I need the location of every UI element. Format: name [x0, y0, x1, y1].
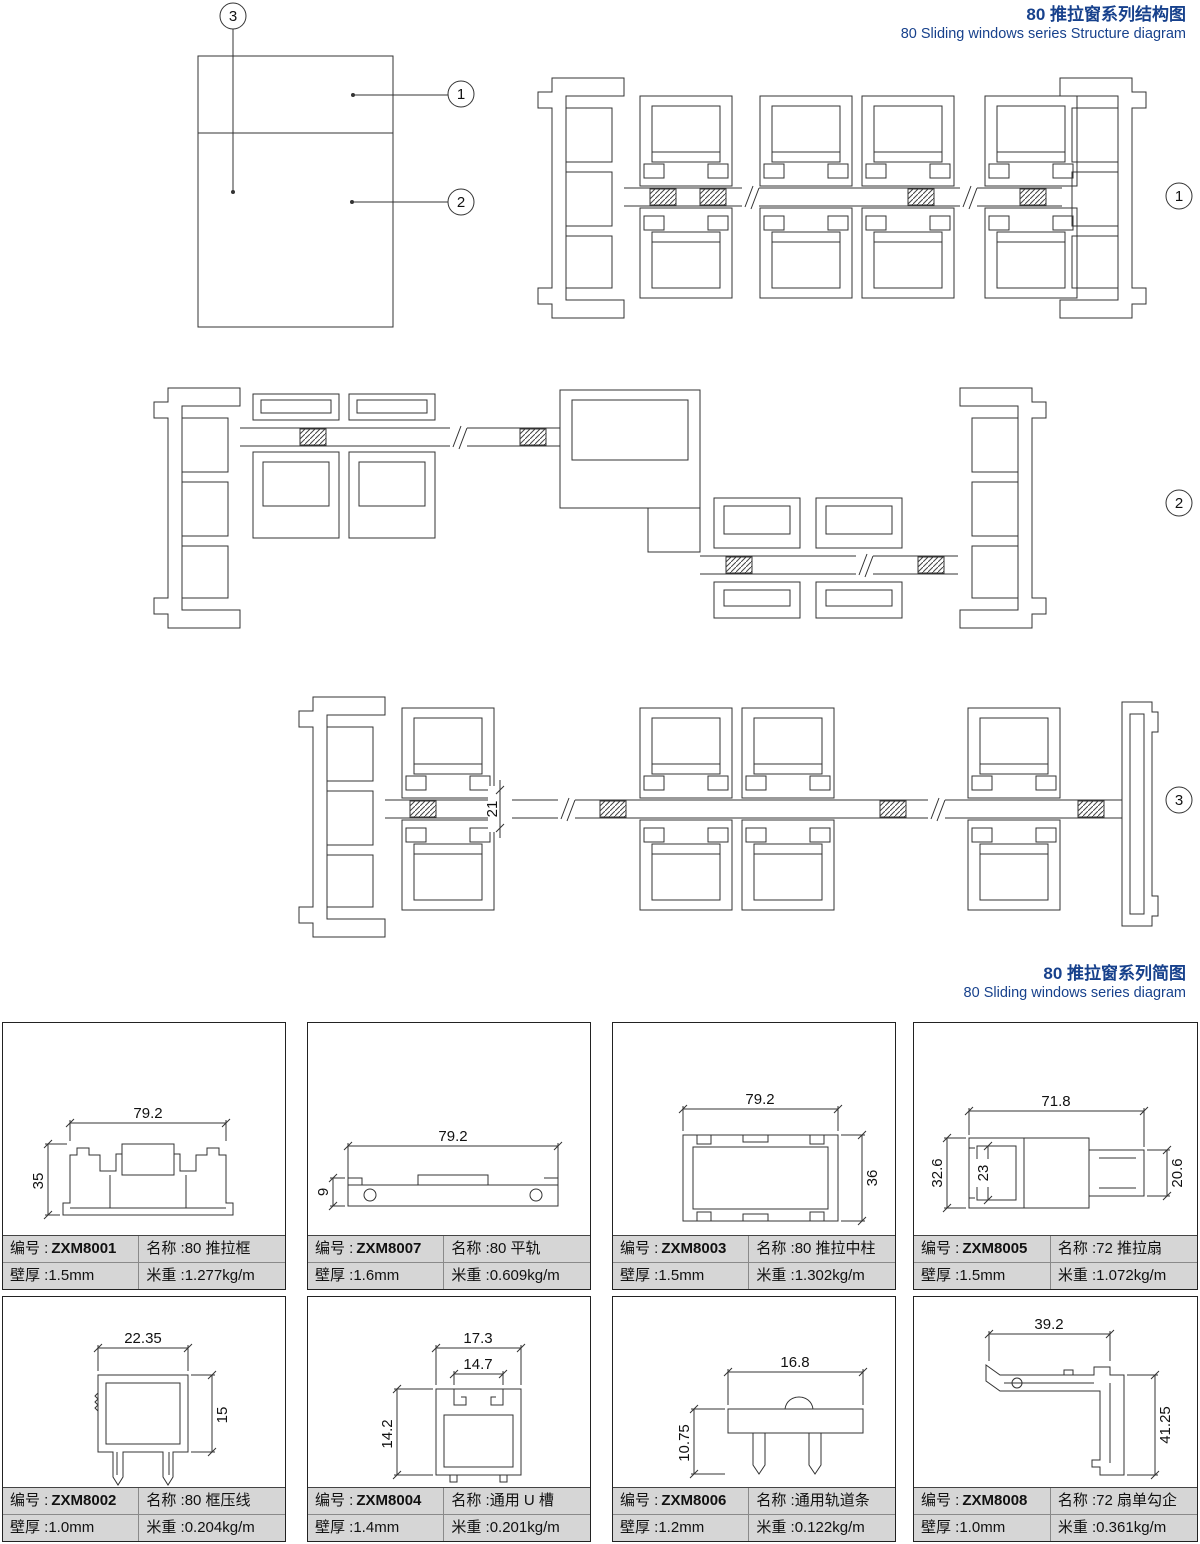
code-label: 编号 : [315, 1492, 353, 1509]
section-view-1 [538, 78, 1146, 318]
page: { "colors": { "accent": "#17418c", "line… [0, 0, 1200, 1544]
dim-label: 14.7 [463, 1356, 492, 1373]
name-label: 名称 : [756, 1240, 794, 1257]
dim-label: 32.6 [929, 1158, 946, 1187]
name-value: 通用轨道条 [795, 1492, 870, 1509]
weight-value: 0.204kg/m [185, 1519, 255, 1536]
weight-label: 米重 : [756, 1267, 794, 1284]
code-cell: 编号 :ZXM8002 [3, 1488, 138, 1515]
wall-value: 1.6mm [353, 1267, 399, 1284]
profile-card-zxm8004: 17.3 14.7 14.2 编号 :ZXM8004 名称 :通用 U 槽 壁厚… [307, 1296, 591, 1542]
wall-label: 壁厚 : [620, 1267, 658, 1284]
weight-value: 0.609kg/m [490, 1267, 560, 1284]
name-label: 名称 : [146, 1492, 184, 1509]
profile-drawing: 79.2 9 [308, 1023, 590, 1235]
weight-value: 1.302kg/m [795, 1267, 865, 1284]
weight-cell: 米重 :1.277kg/m [138, 1263, 285, 1289]
profile-card-zxm8003: 79.2 36 编号 :ZXM8003 名称 :80 推拉中柱 壁厚 :1.5m… [612, 1022, 896, 1290]
profile-info-table: 编号 :ZXM8004 名称 :通用 U 槽 壁厚 :1.4mm 米重 :0.2… [308, 1487, 590, 1541]
code-value: ZXM8007 [356, 1240, 421, 1257]
name-value: 72 扇单勾企 [1096, 1492, 1177, 1509]
wall-value: 1.5mm [959, 1267, 1005, 1284]
weight-label: 米重 : [451, 1519, 489, 1536]
name-cell: 名称 :80 平轨 [443, 1236, 590, 1263]
name-value: 72 推拉扇 [1096, 1240, 1162, 1257]
weight-label: 米重 : [1058, 1519, 1096, 1536]
dim-label: 39.2 [1034, 1316, 1063, 1333]
diagram-title-en: 80 Sliding windows series diagram [964, 984, 1186, 1002]
wall-label: 壁厚 : [315, 1519, 353, 1536]
wall-label: 壁厚 : [620, 1519, 658, 1536]
weight-cell: 米重 :0.609kg/m [443, 1263, 590, 1289]
code-value: ZXM8006 [661, 1492, 726, 1509]
code-cell: 编号 :ZXM8001 [3, 1236, 138, 1263]
diagram-section-title: 80 推拉窗系列简图 80 Sliding windows series dia… [964, 963, 1186, 1002]
dim-label: 71.8 [1041, 1093, 1070, 1110]
name-label: 名称 : [451, 1492, 489, 1509]
wall-label: 壁厚 : [921, 1267, 959, 1284]
weight-cell: 米重 :0.122kg/m [748, 1515, 895, 1541]
weight-cell: 米重 :1.072kg/m [1050, 1263, 1197, 1289]
code-label: 编号 : [315, 1240, 353, 1257]
dim-label: 17.3 [463, 1330, 492, 1347]
dim-label: 23 [975, 1165, 992, 1182]
dim-label: 79.2 [438, 1128, 467, 1145]
name-cell: 名称 :通用 U 槽 [443, 1488, 590, 1515]
wall-value: 1.2mm [658, 1519, 704, 1536]
code-label: 编号 : [921, 1492, 959, 1509]
profile-drawing: 39.2 41.25 [914, 1297, 1197, 1487]
name-label: 名称 : [1058, 1492, 1096, 1509]
code-value: ZXM8002 [51, 1492, 116, 1509]
weight-label: 米重 : [146, 1267, 184, 1284]
weight-value: 1.277kg/m [185, 1267, 255, 1284]
name-cell: 名称 :80 框压线 [138, 1488, 285, 1515]
dim-label: 22.35 [124, 1330, 162, 1347]
dim-label: 20.6 [1169, 1158, 1186, 1187]
dim-label: 79.2 [745, 1091, 774, 1108]
callout-3-label: 3 [1175, 792, 1183, 809]
weight-label: 米重 : [451, 1267, 489, 1284]
dim-label: 16.8 [780, 1354, 809, 1371]
wall-cell: 壁厚 :1.2mm [613, 1515, 748, 1541]
wall-value: 1.0mm [48, 1519, 94, 1536]
name-label: 名称 : [451, 1240, 489, 1257]
callout-2-label: 2 [1175, 495, 1183, 512]
weight-cell: 米重 :0.204kg/m [138, 1515, 285, 1541]
callout-3-top-label: 3 [229, 8, 237, 25]
weight-value: 1.072kg/m [1096, 1267, 1166, 1284]
profile-drawing: 16.8 10.75 [613, 1297, 895, 1487]
code-value: ZXM8008 [962, 1492, 1027, 1509]
profile-info-table: 编号 :ZXM8006 名称 :通用轨道条 壁厚 :1.2mm 米重 :0.12… [613, 1487, 895, 1541]
diagram-title-cn: 80 推拉窗系列简图 [964, 963, 1186, 984]
weight-cell: 米重 :0.201kg/m [443, 1515, 590, 1541]
profile-info-table: 编号 :ZXM8002 名称 :80 框压线 壁厚 :1.0mm 米重 :0.2… [3, 1487, 285, 1541]
profile-card-zxm8007: 79.2 9 编号 :ZXM8007 名称 :80 平轨 壁厚 :1.6mm 米… [307, 1022, 591, 1290]
profile-card-zxm8002: 22.35 15 编号 :ZXM8002 名称 :80 框压线 壁厚 :1.0m… [2, 1296, 286, 1542]
profile-card-zxm8001: 79.2 35 编号 :ZXM8001 名称 :80 推拉框 壁厚 :1.5mm… [2, 1022, 286, 1290]
code-cell: 编号 :ZXM8007 [308, 1236, 443, 1263]
code-label: 编号 : [10, 1492, 48, 1509]
code-cell: 编号 :ZXM8004 [308, 1488, 443, 1515]
wall-label: 壁厚 : [10, 1267, 48, 1284]
wall-cell: 壁厚 :1.6mm [308, 1263, 443, 1289]
wall-cell: 壁厚 :1.0mm [914, 1515, 1050, 1541]
code-cell: 编号 :ZXM8003 [613, 1236, 748, 1263]
callout-1-schematic-label: 1 [457, 86, 465, 103]
section-view-3: 21 [299, 697, 1158, 937]
wall-value: 1.0mm [959, 1519, 1005, 1536]
name-value: 80 推拉中柱 [795, 1240, 876, 1257]
wall-value: 1.4mm [353, 1519, 399, 1536]
profile-drawing: 79.2 36 [613, 1023, 895, 1235]
name-value: 通用 U 槽 [490, 1492, 554, 1509]
code-cell: 编号 :ZXM8005 [914, 1236, 1050, 1263]
wall-cell: 壁厚 :1.5mm [914, 1263, 1050, 1289]
wall-cell: 壁厚 :1.5mm [613, 1263, 748, 1289]
name-value: 80 框压线 [185, 1492, 251, 1509]
profile-card-zxm8006: 16.8 10.75 编号 :ZXM8006 名称 :通用轨道条 壁厚 :1.2… [612, 1296, 896, 1542]
code-label: 编号 : [10, 1240, 48, 1257]
section-callouts: 1 2 3 [1166, 183, 1192, 813]
structure-diagram: 3 1 2 [0, 0, 1200, 960]
weight-label: 米重 : [146, 1519, 184, 1536]
name-value: 80 推拉框 [185, 1240, 251, 1257]
wall-label: 壁厚 : [10, 1519, 48, 1536]
code-value: ZXM8003 [661, 1240, 726, 1257]
profile-drawing: 79.2 35 [3, 1023, 285, 1235]
code-label: 编号 : [921, 1240, 959, 1257]
weight-value: 0.361kg/m [1096, 1519, 1166, 1536]
name-cell: 名称 :80 推拉框 [138, 1236, 285, 1263]
elevation-schematic: 3 1 2 [198, 3, 474, 327]
wall-value: 1.5mm [48, 1267, 94, 1284]
profile-drawing: 71.8 32.6 23 20.6 [914, 1023, 1197, 1235]
wall-value: 1.5mm [658, 1267, 704, 1284]
glass-dim-label: 21 [484, 801, 501, 818]
code-cell: 编号 :ZXM8008 [914, 1488, 1050, 1515]
code-label: 编号 : [620, 1240, 658, 1257]
code-value: ZXM8004 [356, 1492, 421, 1509]
name-label: 名称 : [146, 1240, 184, 1257]
dim-label: 79.2 [133, 1105, 162, 1122]
code-value: ZXM8005 [962, 1240, 1027, 1257]
profile-drawing: 22.35 15 [3, 1297, 285, 1487]
dim-label: 9 [315, 1188, 332, 1196]
code-cell: 编号 :ZXM8006 [613, 1488, 748, 1515]
weight-cell: 米重 :1.302kg/m [748, 1263, 895, 1289]
dim-label: 10.75 [676, 1424, 693, 1462]
name-cell: 名称 :72 扇单勾企 [1050, 1488, 1197, 1515]
name-label: 名称 : [1058, 1240, 1096, 1257]
profile-drawing: 17.3 14.7 14.2 [308, 1297, 590, 1487]
profile-info-table: 编号 :ZXM8001 名称 :80 推拉框 壁厚 :1.5mm 米重 :1.2… [3, 1235, 285, 1289]
weight-label: 米重 : [756, 1519, 794, 1536]
dim-label: 41.25 [1157, 1406, 1174, 1444]
section-view-2 [154, 388, 1046, 628]
wall-cell: 壁厚 :1.4mm [308, 1515, 443, 1541]
weight-value: 0.201kg/m [490, 1519, 560, 1536]
profile-info-table: 编号 :ZXM8008 名称 :72 扇单勾企 壁厚 :1.0mm 米重 :0.… [914, 1487, 1197, 1541]
callout-1-label: 1 [1175, 188, 1183, 205]
weight-label: 米重 : [1058, 1267, 1096, 1284]
weight-cell: 米重 :0.361kg/m [1050, 1515, 1197, 1541]
code-value: ZXM8001 [51, 1240, 116, 1257]
wall-label: 壁厚 : [315, 1267, 353, 1284]
code-label: 编号 : [620, 1492, 658, 1509]
name-cell: 名称 :通用轨道条 [748, 1488, 895, 1515]
profile-info-table: 编号 :ZXM8005 名称 :72 推拉扇 壁厚 :1.5mm 米重 :1.0… [914, 1235, 1197, 1289]
profile-info-table: 编号 :ZXM8007 名称 :80 平轨 壁厚 :1.6mm 米重 :0.60… [308, 1235, 590, 1289]
profile-card-zxm8005: 71.8 32.6 23 20.6 编号 :ZXM8005 名称 :72 推拉扇… [913, 1022, 1198, 1290]
wall-cell: 壁厚 :1.5mm [3, 1263, 138, 1289]
weight-value: 0.122kg/m [795, 1519, 865, 1536]
dim-label: 15 [214, 1407, 231, 1424]
profile-card-zxm8008: 39.2 41.25 编号 :ZXM8008 名称 :72 扇单勾企 壁厚 :1… [913, 1296, 1198, 1542]
name-cell: 名称 :72 推拉扇 [1050, 1236, 1197, 1263]
name-cell: 名称 :80 推拉中柱 [748, 1236, 895, 1263]
dim-label: 14.2 [379, 1419, 396, 1448]
dim-label: 35 [30, 1173, 47, 1190]
name-value: 80 平轨 [490, 1240, 541, 1257]
dim-label: 36 [864, 1170, 881, 1187]
callout-2-schematic-label: 2 [457, 194, 465, 211]
wall-cell: 壁厚 :1.0mm [3, 1515, 138, 1541]
name-label: 名称 : [756, 1492, 794, 1509]
wall-label: 壁厚 : [921, 1519, 959, 1536]
profile-info-table: 编号 :ZXM8003 名称 :80 推拉中柱 壁厚 :1.5mm 米重 :1.… [613, 1235, 895, 1289]
